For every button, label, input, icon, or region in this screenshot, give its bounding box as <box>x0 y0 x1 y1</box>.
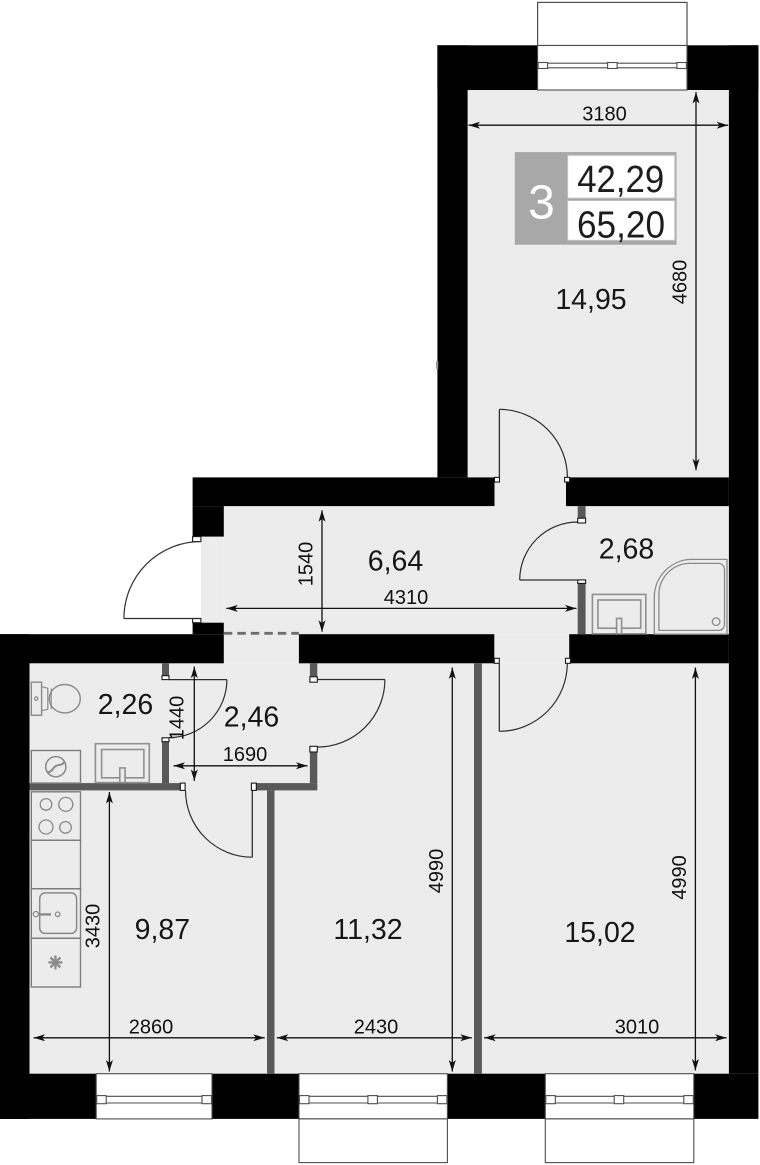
svg-text:15,02: 15,02 <box>564 917 635 949</box>
svg-text:2,46: 2,46 <box>224 702 279 734</box>
svg-text:11,32: 11,32 <box>333 914 402 946</box>
svg-text:3430: 3430 <box>82 904 104 949</box>
svg-text:3180: 3180 <box>582 104 627 126</box>
svg-text:1440: 1440 <box>167 696 189 741</box>
svg-text:2430: 2430 <box>354 1017 399 1039</box>
svg-text:1540: 1540 <box>296 542 318 587</box>
svg-text:6,64: 6,64 <box>368 546 424 578</box>
svg-text:3: 3 <box>528 177 555 230</box>
svg-text:1690: 1690 <box>223 744 268 766</box>
svg-text:2,68: 2,68 <box>599 534 654 566</box>
svg-text:14,95: 14,95 <box>555 284 626 316</box>
svg-text:4680: 4680 <box>670 260 692 305</box>
svg-text:9,87: 9,87 <box>135 914 190 946</box>
svg-text:3010: 3010 <box>615 1017 660 1039</box>
svg-text:2,26: 2,26 <box>98 689 153 721</box>
svg-text:2860: 2860 <box>129 1017 174 1039</box>
svg-text:4990: 4990 <box>426 849 448 894</box>
svg-text:42,29: 42,29 <box>577 159 664 201</box>
svg-text:4310: 4310 <box>384 587 429 609</box>
svg-text:65,20: 65,20 <box>577 204 665 246</box>
svg-text:4990: 4990 <box>669 855 691 900</box>
